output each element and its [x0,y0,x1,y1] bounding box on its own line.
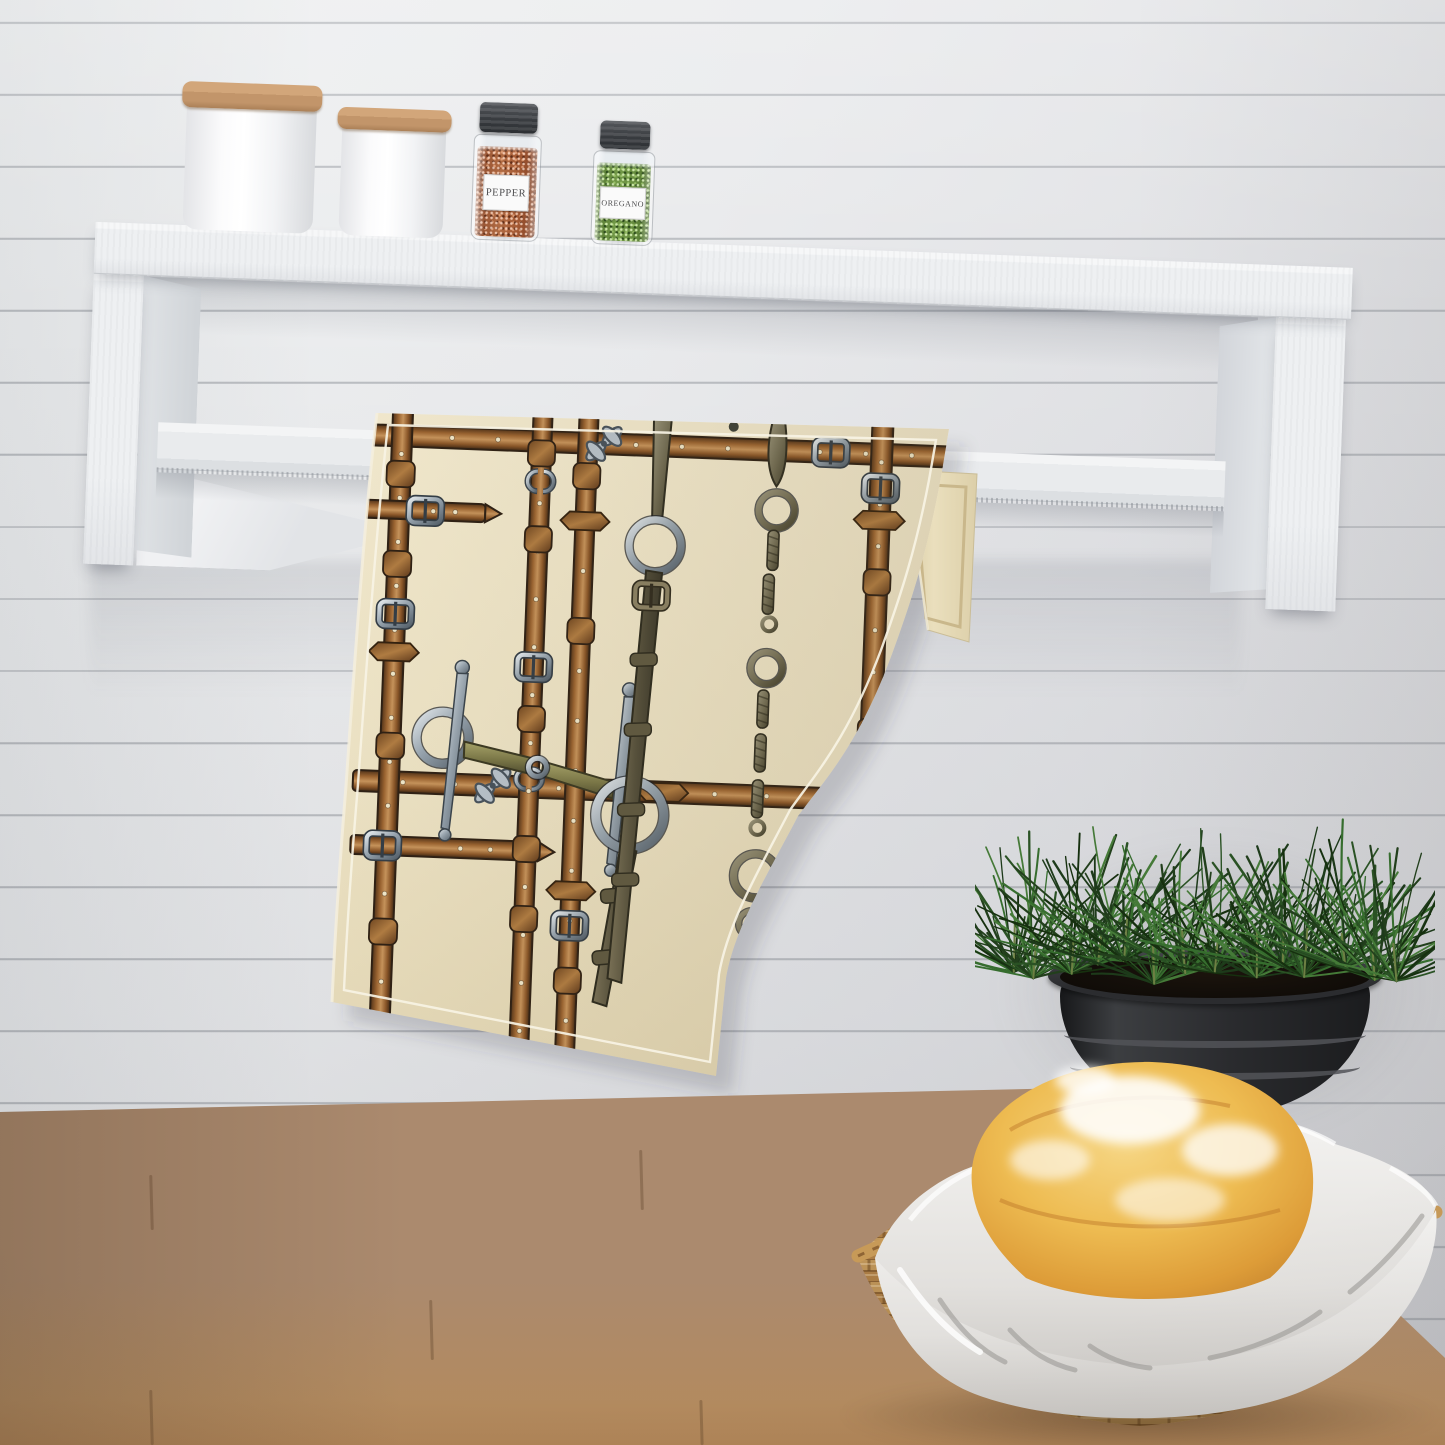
jar-cap [479,102,538,134]
left-support [83,274,144,566]
jar-label: PEPPER [482,174,529,212]
left-support-inner [133,276,201,558]
jar-cap [600,120,651,150]
spice-jar-pepper: PEPPER [470,102,543,242]
canister-wood-lid [337,107,452,133]
jar-label: OREGANO [599,186,646,220]
white-canister-small [338,107,447,239]
bread-basket-group [830,1040,1445,1445]
spice-jar-oregano: OREGANO [590,120,657,246]
canister-body [182,105,316,234]
white-canister-large [182,81,317,234]
canister-body [338,127,446,239]
product-mockup-scene: PEPPER OREGANO [0,0,1445,1445]
needle-herb-plant [975,718,1435,1018]
canister-wood-lid [182,81,323,112]
right-support [1265,317,1346,611]
tea-towel [280,380,1060,1140]
bread-loaf [972,1062,1314,1299]
right-support-inner [1210,315,1276,595]
